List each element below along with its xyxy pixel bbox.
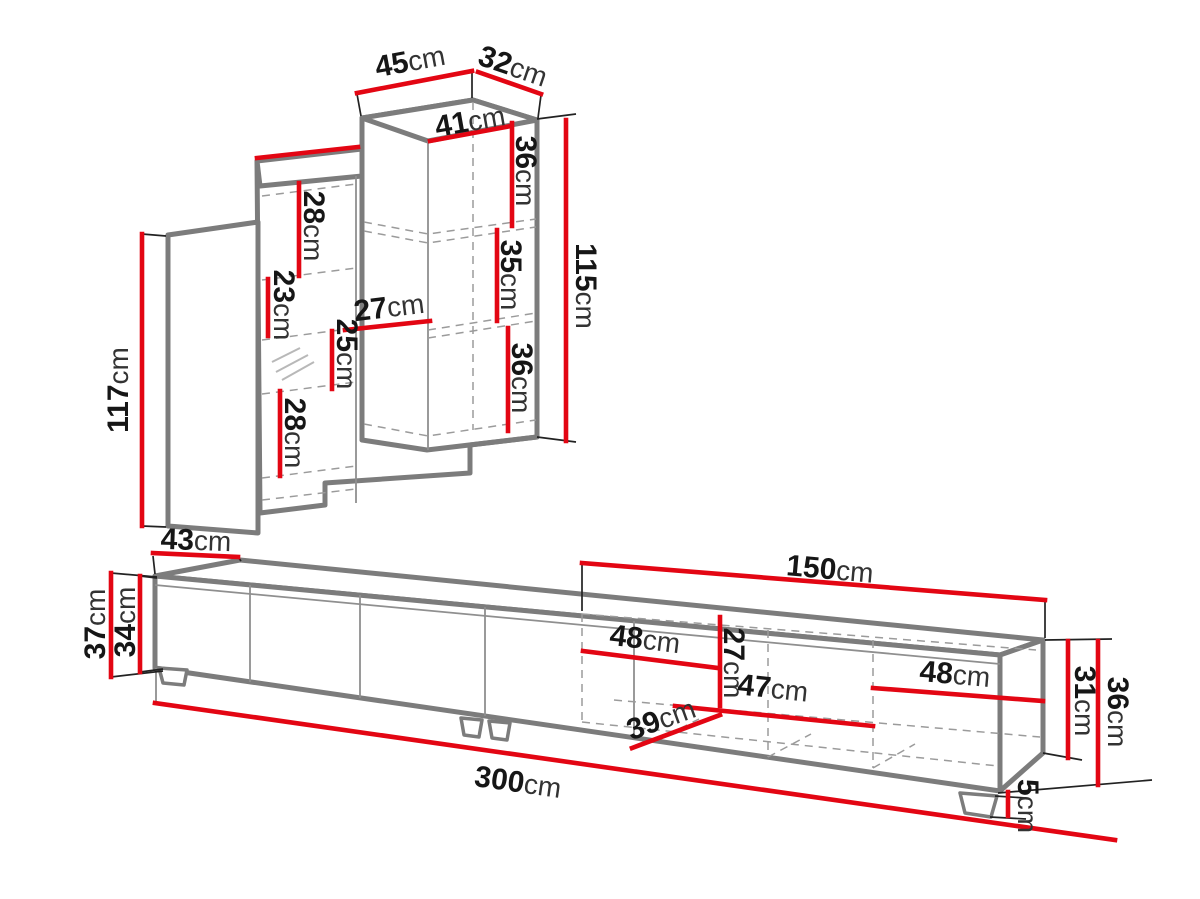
dim-label-door-height: 117cm xyxy=(102,347,135,433)
tv-stand-foot-mid-b xyxy=(489,721,510,740)
dim-label-right-end-height: 36cm xyxy=(1102,677,1135,748)
dim-label-tv-depth: 43cm xyxy=(160,522,232,557)
wall-unit xyxy=(168,100,537,533)
tv-stand-foot-mid-a xyxy=(461,718,482,737)
dim-label-shelf-top: 28cm xyxy=(298,191,331,262)
wall-unit-door xyxy=(168,222,258,533)
dim-label-cab-mid-section: 35cm xyxy=(495,240,528,311)
dim-label-total-width: 300cm xyxy=(472,760,563,805)
dim-label-cab-top-section: 36cm xyxy=(510,136,543,207)
diagram-canvas: 45cm 32cm 41cm 36cm 35cm 36cm 115cm 28cm… xyxy=(0,0,1200,899)
dim-label-right-inner-height: 31cm xyxy=(1069,666,1102,737)
tv-stand-foot-right xyxy=(960,793,997,817)
dim-label-shelf-third: 25cm xyxy=(331,319,364,390)
dim-label-feet-height: 5cm xyxy=(1012,779,1045,833)
dim-label-cab-bottom-section: 36cm xyxy=(506,343,539,414)
tv-stand xyxy=(155,560,1043,817)
dim-label-open-section-width: 150cm xyxy=(785,549,875,589)
dim-label-shelf-bottom: 28cm xyxy=(279,398,312,469)
dim-label-right-compartment: 48cm xyxy=(918,654,991,693)
dim-label-tv-total-height: 37cm xyxy=(79,589,112,660)
tv-stand-foot-left xyxy=(159,668,187,685)
dim-label-tv-body-height: 34cm xyxy=(109,587,142,658)
tv-stand-right-face xyxy=(1000,640,1043,791)
dim-label-cab-height: 115cm xyxy=(570,243,603,329)
dim-label-shelf-second: 23cm xyxy=(268,270,301,341)
furniture-dimension-diagram: 45cm 32cm 41cm 36cm 35cm 36cm 115cm 28cm… xyxy=(0,0,1200,899)
